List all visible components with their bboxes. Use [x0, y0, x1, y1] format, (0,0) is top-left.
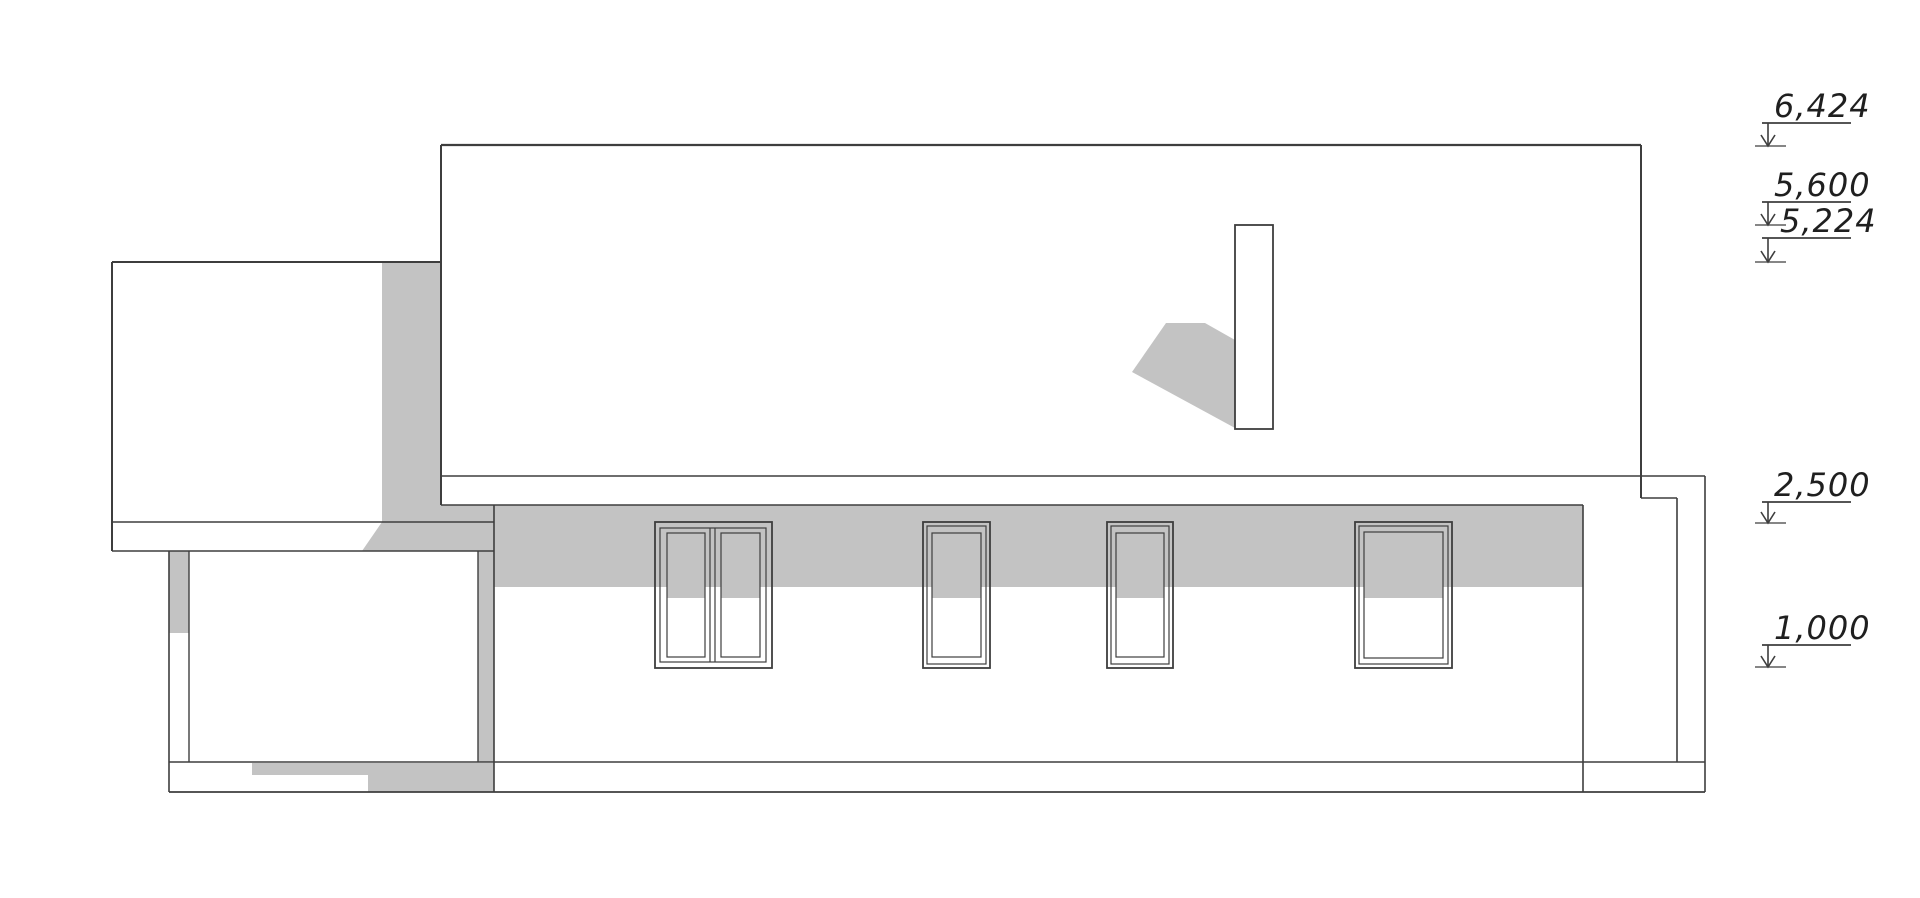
carport-inner-shadow [478, 551, 494, 762]
main-roof [441, 145, 1705, 505]
chimney [1235, 225, 1273, 429]
level-label: 1,000 [1774, 609, 1871, 647]
veranda-right [1641, 476, 1705, 792]
elevation-drawing: 6,424 5,600 5,224 2,500 [0, 0, 1920, 898]
post-shadow [169, 551, 189, 633]
level-label: 2,500 [1774, 466, 1871, 504]
level-label: 5,224 [1780, 202, 1877, 240]
level-mark-1000: 1,000 [1755, 609, 1871, 667]
level-mark-6424: 6,424 [1755, 87, 1871, 146]
level-label: 6,424 [1774, 87, 1871, 125]
level-mark-5224: 5,224 [1755, 202, 1877, 262]
level-marks: 6,424 5,600 5,224 2,500 [1755, 87, 1877, 667]
chimney-shadow [1132, 323, 1235, 428]
plinth-shadow [252, 763, 494, 792]
level-mark-2500: 2,500 [1755, 466, 1871, 523]
garage-roof-shadow [362, 262, 494, 551]
level-label: 5,600 [1774, 166, 1871, 204]
carport [169, 551, 478, 792]
elevation-drawing-page: 6,424 5,600 5,224 2,500 [0, 0, 1920, 898]
shadows [169, 262, 1583, 792]
